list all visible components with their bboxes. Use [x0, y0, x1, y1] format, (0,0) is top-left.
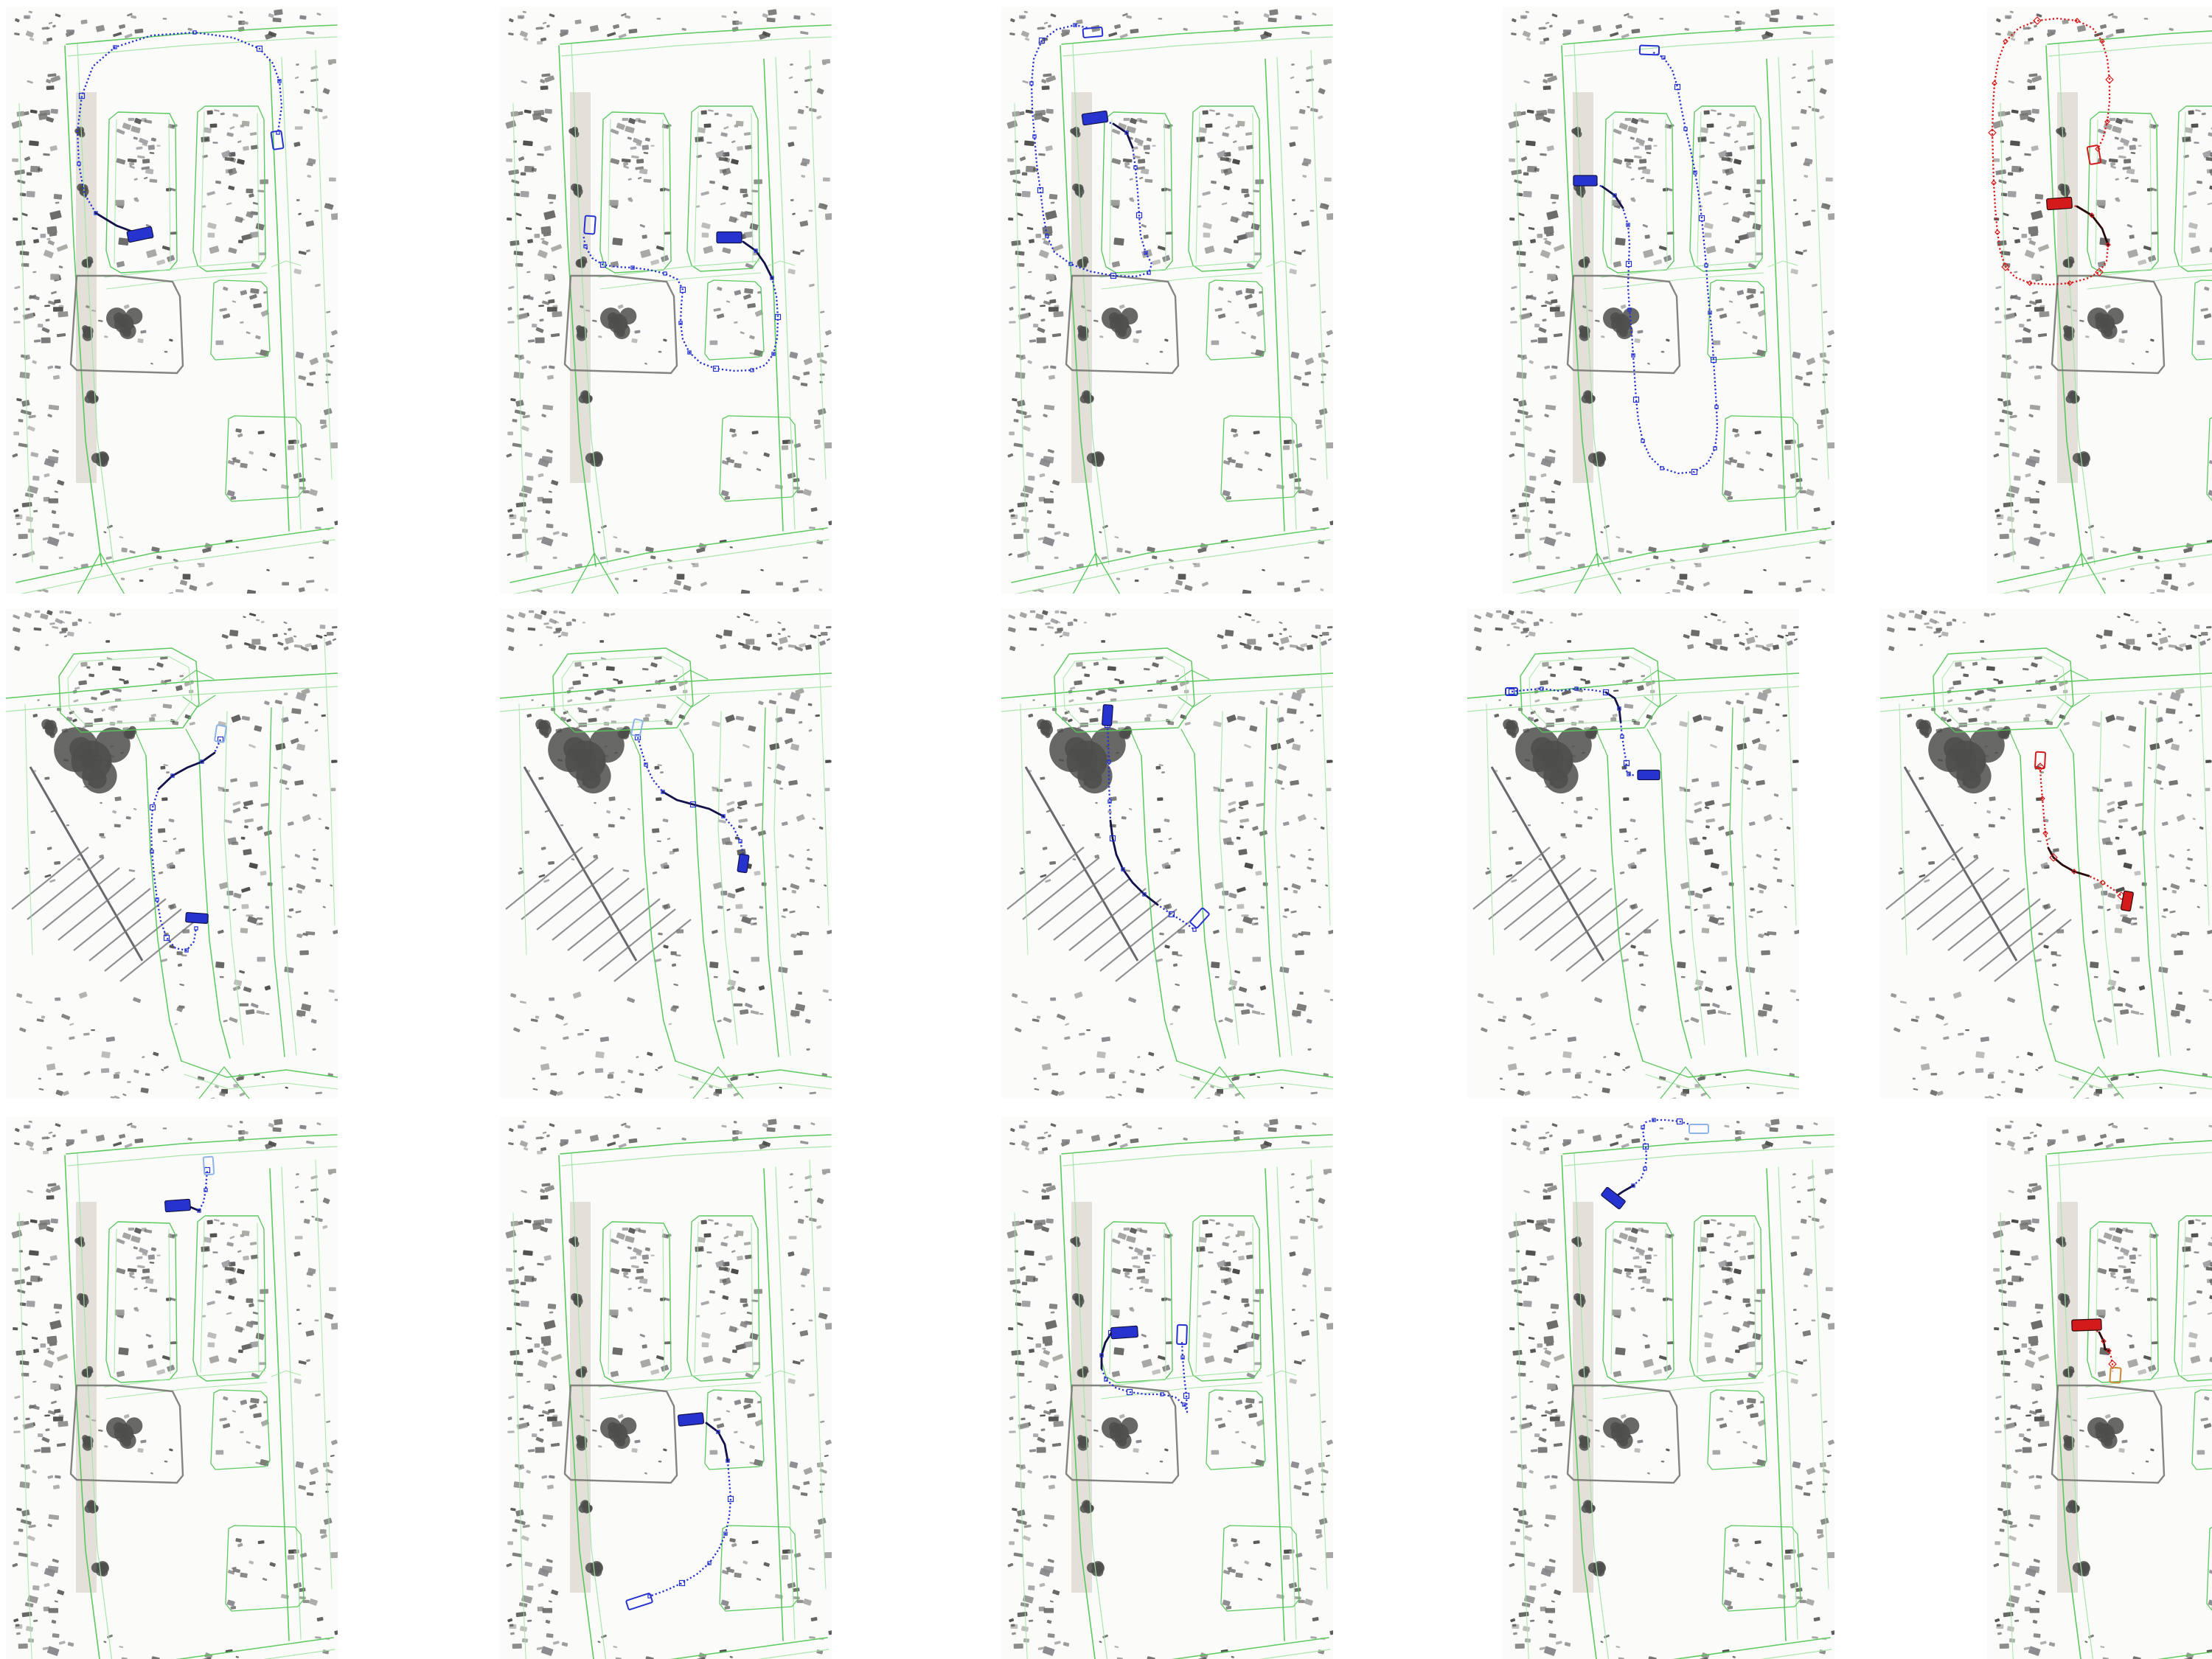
map-canvas-r1c5: [1987, 7, 2212, 594]
map-panel-row3-col5: [1987, 1117, 2212, 1659]
map-panel-row2-col2: [500, 608, 832, 1099]
map-canvas-r3c1: [6, 1117, 338, 1659]
map-canvas-r2c4: [1467, 608, 1799, 1099]
map-panel-row1-col4: [1503, 7, 1834, 594]
map-canvas-r3c4: [1503, 1117, 1834, 1659]
map-panel-row2-col1: [6, 608, 338, 1099]
map-panel-row3-col2: [500, 1117, 832, 1659]
map-canvas-r3c5: [1987, 1117, 2212, 1659]
map-panel-row3-col1: [6, 1117, 338, 1659]
map-canvas-r2c1: [6, 608, 338, 1099]
map-canvas-r2c5: [1880, 608, 2212, 1099]
map-panel-row1-col2: [500, 7, 832, 594]
map-panel-row3-col3: [1001, 1117, 1333, 1659]
map-panel-row1-col3: [1001, 7, 1333, 594]
map-panel-row1-col5: [1987, 7, 2212, 594]
map-panel-row2-col5: [1880, 608, 2212, 1099]
map-canvas-r1c1: [6, 7, 338, 594]
map-panel-row2-col3: [1001, 608, 1333, 1099]
map-panel-row1-col1: [6, 7, 338, 594]
map-canvas-r3c2: [500, 1117, 832, 1659]
map-panel-row3-col4: [1503, 1117, 1834, 1659]
map-canvas-r1c4: [1503, 7, 1834, 594]
map-canvas-r1c3: [1001, 7, 1333, 594]
map-canvas-r3c3: [1001, 1117, 1333, 1659]
map-panel-row2-col4: [1467, 608, 1799, 1099]
map-canvas-r2c2: [500, 608, 832, 1099]
map-canvas-r2c3: [1001, 608, 1333, 1099]
map-canvas-r1c2: [500, 7, 832, 594]
trajectory-figure-grid: [0, 0, 2212, 1659]
